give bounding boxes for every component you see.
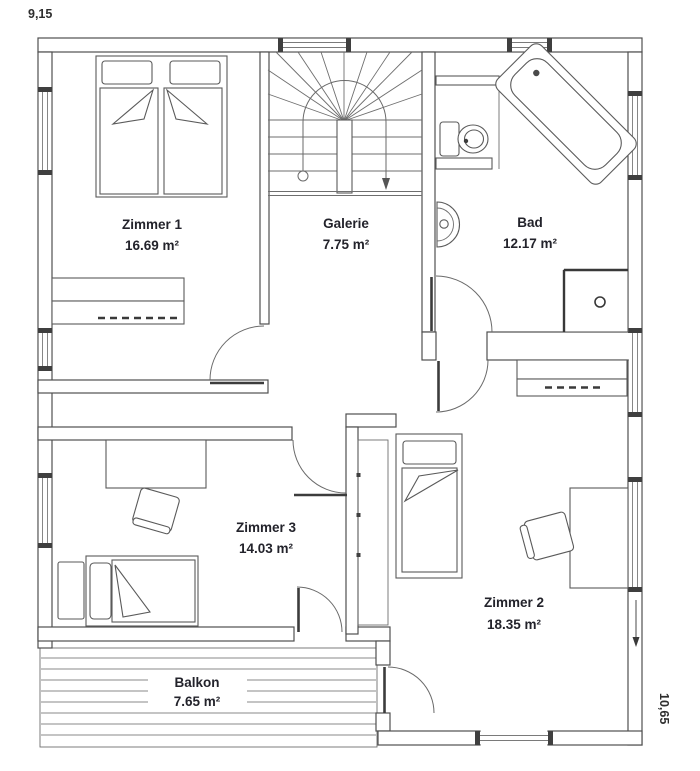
floor-plan-drawing: 9,15 10,65 Zimmer 1 16.69 m² Galerie 7.7…	[0, 0, 700, 771]
room-label-balkon: Balkon	[174, 675, 219, 690]
wc-niche	[436, 76, 499, 169]
door-balkon-zimmer3	[297, 587, 342, 632]
window	[278, 38, 351, 52]
chair-zimmer3-icon	[131, 487, 180, 535]
floor-plan-page: 9,15 10,65 Zimmer 1 16.69 m² Galerie 7.7…	[0, 0, 700, 771]
door-zimmer1	[210, 326, 264, 383]
door-zimmer2	[436, 360, 488, 412]
double-bed-icon	[96, 56, 227, 197]
shower-icon	[564, 270, 628, 332]
window	[475, 731, 553, 745]
side-table-icon	[58, 562, 84, 619]
room-label-zimmer1: Zimmer 1	[122, 217, 183, 232]
stair-fan-treads	[268, 52, 422, 121]
desk-zimmer3-icon	[106, 440, 206, 488]
walking-line-arrow	[382, 178, 390, 190]
niche-ledge	[436, 76, 499, 85]
bed-zimmer2-icon	[396, 434, 462, 578]
window	[38, 473, 52, 548]
dimension-height-label: 10,65	[657, 693, 671, 724]
bathtub-icon	[492, 40, 639, 187]
wardrobe-zimmer2-icon	[517, 360, 627, 396]
staircase	[268, 52, 422, 196]
door-balkon-zimmer2	[385, 667, 435, 713]
room-area-bad: 12.17 m²	[503, 236, 558, 251]
room-area-balkon: 7.65 m²	[174, 694, 221, 709]
window	[628, 477, 642, 592]
room-area-galerie: 7.75 m²	[323, 237, 370, 252]
closet-zimmer2-icon	[357, 440, 389, 625]
niche-shelf	[436, 158, 492, 169]
washbasin-icon	[437, 202, 460, 247]
window	[38, 87, 52, 175]
room-area-zimmer2: 18.35 m²	[487, 617, 542, 632]
stair-newel	[337, 120, 352, 193]
chair-zimmer2-icon	[519, 511, 575, 562]
window	[628, 328, 642, 417]
room-label-galerie: Galerie	[323, 216, 369, 231]
door-bad	[432, 276, 493, 332]
door-zimmer3	[293, 440, 347, 495]
wardrobe-zimmer1-icon	[52, 278, 184, 324]
window	[38, 328, 52, 371]
room-label-bad: Bad	[517, 215, 543, 230]
bed-zimmer3-icon	[86, 556, 198, 626]
room-label-zimmer3: Zimmer 3	[236, 520, 297, 535]
balkon-label-group: Balkon 7.65 m²	[148, 671, 247, 710]
room-label-zimmer2: Zimmer 2	[484, 595, 544, 610]
toilet-icon	[440, 122, 488, 156]
dimension-width-label: 9,15	[28, 7, 52, 21]
desk-zimmer2-icon	[570, 488, 628, 588]
room-area-zimmer1: 16.69 m²	[125, 238, 180, 253]
room-area-zimmer3: 14.03 m²	[239, 541, 294, 556]
